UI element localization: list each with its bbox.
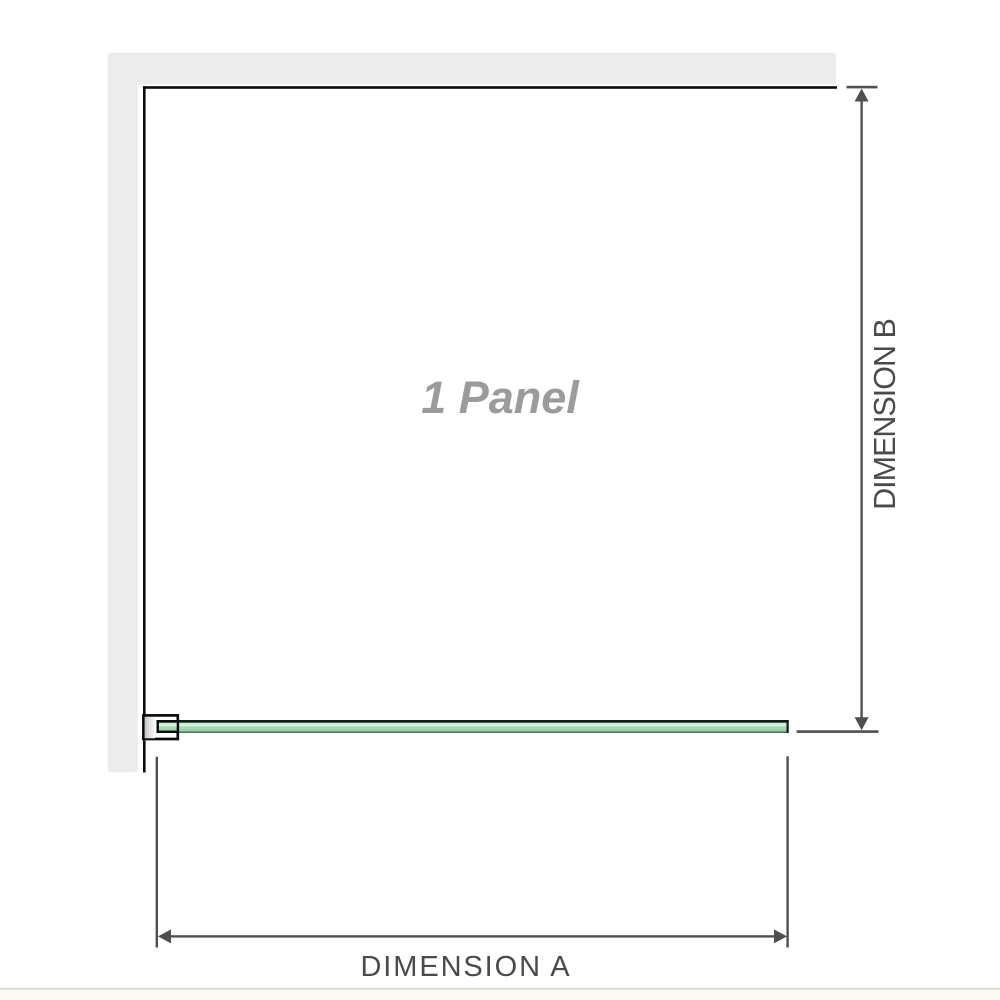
- svg-text:DIMENSION B: DIMENSION B: [868, 319, 902, 510]
- svg-text:DIMENSION A: DIMENSION A: [360, 951, 571, 983]
- svg-text:1 Panel: 1 Panel: [421, 372, 580, 423]
